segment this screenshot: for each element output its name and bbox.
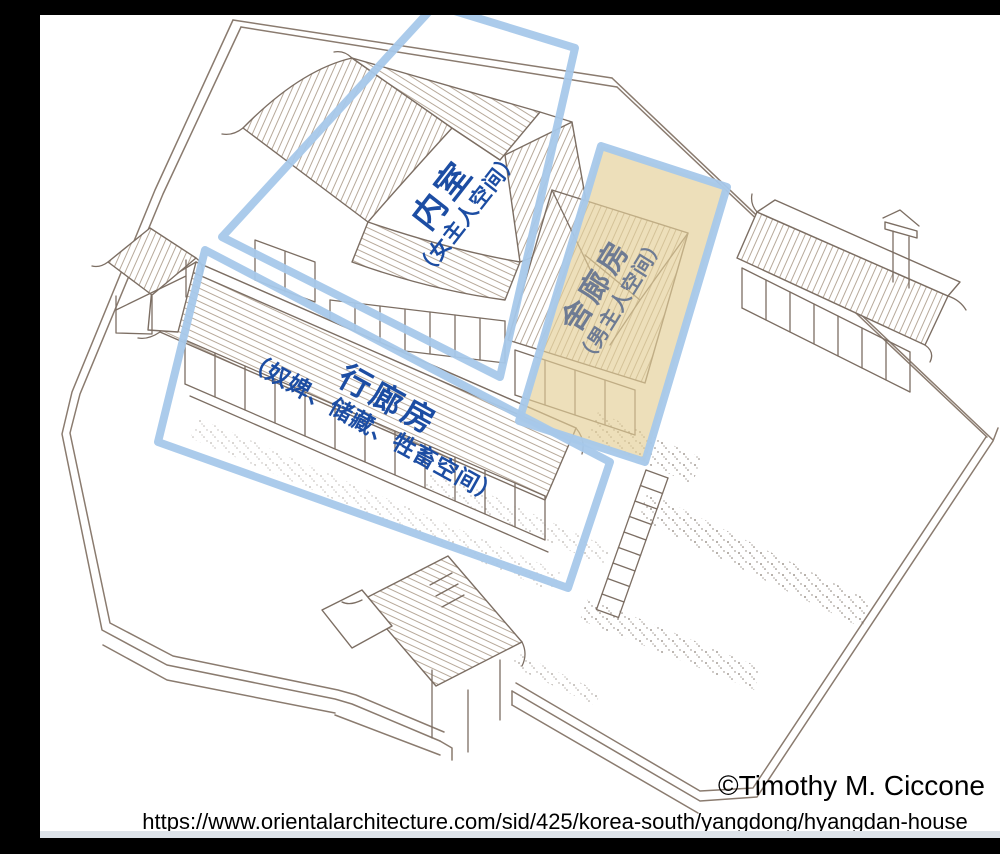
screenshot-canvas: 内室 （女主人空间） 舍廊房 （男主人空间） 行廊房 （奴婢、储藏、牲畜空间） … xyxy=(0,0,1000,854)
left-letterbox-bar xyxy=(0,0,40,854)
top-letterbox-bar xyxy=(0,0,1000,15)
right-outbuilding xyxy=(737,194,966,392)
site-plan-drawing xyxy=(0,0,1000,854)
bottom-gray-strip xyxy=(40,831,1000,838)
stairs xyxy=(597,470,669,618)
bottom-letterbox-bar xyxy=(0,838,1000,854)
photo-credit: ©Timothy M. Ciccone xyxy=(718,770,985,802)
